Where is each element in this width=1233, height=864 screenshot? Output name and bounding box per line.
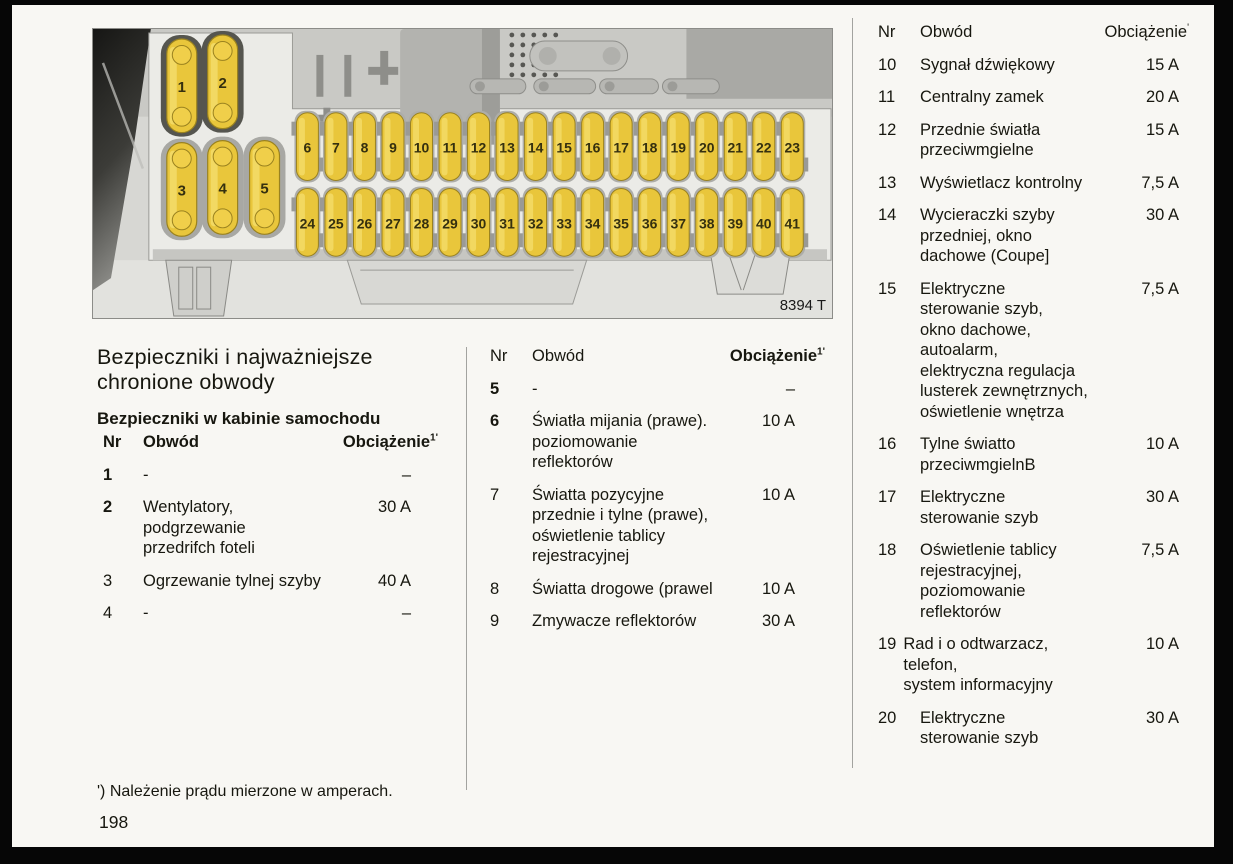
fuse-number: 2: [97, 497, 143, 518]
svg-text:19: 19: [670, 140, 686, 156]
fuse-number: 1: [97, 465, 143, 486]
svg-text:35: 35: [613, 215, 629, 231]
fuse-row-8: 8Światta drogowe (prawel10 A: [490, 579, 825, 600]
table-header: Nr Obwód Obciążenie1': [490, 346, 825, 367]
fuse-load: –: [338, 465, 438, 486]
svg-text:6: 6: [304, 140, 312, 156]
fuse-number: 15: [878, 279, 920, 300]
fuse-number: 19: [878, 634, 896, 655]
fuse-number: 18: [878, 540, 920, 561]
svg-text:4: 4: [218, 180, 227, 197]
fuse-number: 5: [490, 379, 532, 400]
fuse-load: 10 A: [725, 411, 825, 432]
svg-text:28: 28: [414, 215, 430, 231]
fuse-25: 25: [320, 186, 352, 258]
svg-text:7: 7: [332, 140, 340, 156]
fuse-load: 15 A: [1089, 55, 1189, 76]
fuse-23: 23: [776, 111, 808, 183]
scan-border-right: [1214, 0, 1233, 864]
svg-text:15: 15: [556, 140, 572, 156]
fuse-15: 15: [548, 111, 580, 183]
column-divider: [466, 347, 467, 790]
fuse-18: 18: [634, 111, 666, 183]
fuse-row-9: 9Zmywacze reflektorów30 A: [490, 611, 825, 632]
circuit-name: -: [143, 603, 338, 624]
svg-text:12: 12: [471, 140, 487, 156]
fuse-row-7: 7Światta pozycyjneprzednie i tylne (praw…: [490, 485, 825, 567]
fuse-load: 15 A: [1089, 120, 1189, 141]
fuse-number: 11: [878, 87, 920, 108]
fuse-21: 21: [719, 111, 751, 183]
fuse-row-18: 18Oświetlenie tablicyrejestracyjnej,pozi…: [878, 540, 1189, 622]
fuse-number: 12: [878, 120, 920, 141]
fuse-30: 30: [463, 186, 495, 258]
circuit-name: Centralny zamek: [920, 87, 1089, 108]
fuse-7: 7: [320, 111, 352, 183]
fuse-10: 10: [406, 111, 438, 183]
circuit-name: -: [532, 379, 725, 400]
fuse-load: 20 A: [1089, 87, 1189, 108]
figure-caption: 8394 T: [780, 297, 826, 314]
fuse-35: 35: [605, 186, 637, 258]
circuit-name: Światła mijania (prawe).poziomowanierefl…: [532, 411, 725, 473]
header-load: Obciążenie1': [730, 346, 825, 367]
svg-text:5: 5: [260, 180, 268, 197]
circuit-name: Zmywacze reflektorów: [532, 611, 725, 632]
fuse-13: 13: [491, 111, 523, 183]
table-header: Nr Obwód Obciążenie1': [97, 432, 438, 453]
circuit-name: -: [143, 465, 338, 486]
svg-text:39: 39: [728, 215, 744, 231]
fuse-table-left: 1-–2Wentylatory,podgrzewanieprzedrifch f…: [97, 465, 438, 624]
footnote: ') Należenie prądu mierzone w amperach.: [97, 783, 393, 801]
fuse-load: 10 A: [1089, 434, 1189, 455]
fuse-number: 13: [878, 173, 920, 194]
page-number: 198: [99, 812, 128, 833]
circuit-name: Sygnał dźwiękowy: [920, 55, 1089, 76]
svg-text:2: 2: [218, 75, 226, 92]
svg-text:36: 36: [642, 215, 658, 231]
fuse-28: 28: [406, 186, 438, 258]
svg-text:17: 17: [613, 140, 629, 156]
column-divider: [852, 18, 853, 768]
fuse-row-1: 1-–: [97, 465, 438, 486]
fuse-37: 37: [662, 186, 694, 258]
fuse-load: 7,5 A: [1089, 173, 1189, 194]
page-title-line2: chronione obwody: [97, 370, 438, 395]
svg-text:38: 38: [699, 215, 715, 231]
fuse-row-5: 5-–: [490, 379, 825, 400]
svg-text:21: 21: [728, 140, 744, 156]
fuse-19: 19: [662, 111, 694, 183]
svg-text:8: 8: [361, 140, 369, 156]
page-title-line1: Bezpieczniki i najważniejsze: [97, 345, 438, 370]
fuse-load: –: [725, 379, 825, 400]
fuse-3: 3: [161, 139, 203, 241]
header-nr: Nr: [97, 432, 143, 453]
fuse-row-3: 3Ogrzewanie tylnej szyby40 A: [97, 571, 438, 592]
fuse-number: 17: [878, 487, 920, 508]
fuse-load: 10 A: [725, 485, 825, 506]
fuse-33: 33: [548, 186, 580, 258]
fuse-41: 41: [776, 186, 808, 258]
fusebox-svg: 1234567891011121314151617181920212223242…: [93, 29, 832, 318]
fuse-row-2: 2Wentylatory,podgrzewanieprzedrifch fote…: [97, 497, 438, 559]
svg-text:14: 14: [528, 140, 544, 156]
svg-text:20: 20: [699, 140, 715, 156]
scanned-manual-page: 1234567891011121314151617181920212223242…: [0, 0, 1233, 864]
fuse-number: 14: [878, 205, 920, 226]
fuse-11: 11: [434, 111, 466, 183]
fuse-12: 12: [463, 111, 495, 183]
fusebox-illustration: 1234567891011121314151617181920212223242…: [92, 28, 833, 319]
header-nr: Nr: [878, 22, 920, 43]
svg-text:25: 25: [328, 215, 344, 231]
column-right: Nr Obwód Obciążenie' 10Sygnał dźwiękowy1…: [878, 22, 1189, 761]
svg-text:9: 9: [389, 140, 397, 156]
fuse-row-11: 11Centralny zamek20 A: [878, 87, 1189, 108]
fuse-22: 22: [748, 111, 780, 183]
fuse-5: 5: [244, 137, 286, 239]
svg-text:10: 10: [414, 140, 430, 156]
fuse-load: 40 A: [338, 571, 438, 592]
fuse-36: 36: [634, 186, 666, 258]
svg-text:1: 1: [178, 79, 186, 96]
fuse-number: 8: [490, 579, 532, 600]
fuse-29: 29: [434, 186, 466, 258]
circuit-name: Przednie światłaprzeciwmgielne: [920, 120, 1089, 161]
fuse-38: 38: [691, 186, 723, 258]
fuse-8: 8: [349, 111, 381, 183]
header-circuit: Obwód: [920, 22, 972, 43]
fuse-39: 39: [719, 186, 751, 258]
fuse-row-20: 20Elektrycznesterowanie szyb30 A: [878, 708, 1189, 749]
circuit-name: Światta pozycyjneprzednie i tylne (prawe…: [532, 485, 725, 567]
fuse-table-middle: 5-–6Światła mijania (prawe).poziomowanie…: [490, 379, 825, 632]
fuse-number: 10: [878, 55, 920, 76]
fuse-load: –: [338, 603, 438, 624]
svg-text:26: 26: [357, 215, 373, 231]
fuse-17: 17: [605, 111, 637, 183]
fuse-24: 24: [291, 186, 323, 258]
circuit-name: Wycieraczki szybyprzedniej, oknodachowe …: [920, 205, 1089, 267]
header-load: Obciążenie': [1105, 22, 1189, 43]
page-title: Bezpieczniki i najważniejsze chronione o…: [97, 345, 438, 395]
fuse-2: 2: [202, 31, 244, 133]
svg-text:40: 40: [756, 215, 772, 231]
svg-text:18: 18: [642, 140, 658, 156]
circuit-name: Światta drogowe (prawel: [532, 579, 725, 600]
header-circuit: Obwód: [532, 346, 584, 367]
table-header: Nr Obwód Obciążenie': [878, 22, 1189, 43]
fuse-number: 9: [490, 611, 532, 632]
header-nr: Nr: [490, 346, 532, 367]
fuse-9: 9: [377, 111, 409, 183]
fuse-load: 7,5 A: [1089, 279, 1189, 300]
fuse-row-6: 6Światła mijania (prawe).poziomowanieref…: [490, 411, 825, 473]
fuse-20: 20: [691, 111, 723, 183]
fuse-number: 4: [97, 603, 143, 624]
circuit-name: Wentylatory,podgrzewanieprzedrifch fotel…: [143, 497, 338, 559]
fuse-34: 34: [577, 186, 609, 258]
fuse-load: 10 A: [1089, 634, 1189, 655]
svg-text:23: 23: [785, 140, 801, 156]
column-middle: Nr Obwód Obciążenie1' 5-–6Światła mijani…: [490, 346, 825, 644]
fuse-load: 30 A: [1089, 205, 1189, 226]
fuse-load: 10 A: [725, 579, 825, 600]
fuse-4: 4: [202, 137, 244, 239]
svg-text:22: 22: [756, 140, 772, 156]
circuit-name: Elektrycznesterowanie szyb: [920, 487, 1089, 528]
svg-text:37: 37: [670, 215, 686, 231]
svg-text:30: 30: [471, 215, 487, 231]
header-load: Obciążenie1': [343, 432, 438, 453]
svg-text:33: 33: [556, 215, 572, 231]
fuse-number: 6: [490, 411, 532, 432]
svg-text:16: 16: [585, 140, 601, 156]
fuse-row-14: 14Wycieraczki szybyprzedniej, oknodachow…: [878, 205, 1189, 267]
svg-text:34: 34: [585, 215, 601, 231]
circuit-name: Oświetlenie tablicyrejestracyjnej,poziom…: [920, 540, 1089, 622]
svg-text:13: 13: [499, 140, 515, 156]
fuse-14: 14: [520, 111, 552, 183]
fuse-load: 30 A: [1089, 487, 1189, 508]
svg-text:3: 3: [178, 182, 186, 199]
column-left: Bezpieczniki i najważniejsze chronione o…: [97, 345, 438, 636]
circuit-name: Rad i o odtwarzacz,telefon,system inform…: [903, 634, 1089, 696]
fuse-26: 26: [349, 186, 381, 258]
fuse-load: 30 A: [338, 497, 438, 518]
svg-text:31: 31: [499, 215, 515, 231]
svg-text:41: 41: [785, 215, 801, 231]
fuse-load: 30 A: [725, 611, 825, 632]
fuse-40: 40: [748, 186, 780, 258]
scan-border-top: [0, 0, 1233, 5]
svg-text:32: 32: [528, 215, 544, 231]
svg-text:24: 24: [300, 215, 316, 231]
fuse-number: 3: [97, 571, 143, 592]
scan-border-bottom: [0, 847, 1233, 864]
fuse-row-15: 15Elektrycznesterowanie szyb,okno dachow…: [878, 279, 1189, 423]
fuse-row-12: 12Przednie światłaprzeciwmgielne15 A: [878, 120, 1189, 161]
circuit-name: Tylne świattoprzeciwmgielnB: [920, 434, 1089, 475]
fuse-32: 32: [520, 186, 552, 258]
fuse-number: 7: [490, 485, 532, 506]
svg-text:29: 29: [442, 215, 458, 231]
circuit-name: Elektrycznesterowanie szyb: [920, 708, 1089, 749]
circuit-name: Elektrycznesterowanie szyb,okno dachowe,…: [920, 279, 1089, 423]
scan-border-left: [0, 0, 12, 864]
fuse-row-16: 16Tylne świattoprzeciwmgielnB10 A: [878, 434, 1189, 475]
svg-text:27: 27: [385, 215, 401, 231]
fuse-1: 1: [161, 35, 203, 137]
fuse-6: 6: [291, 111, 323, 183]
svg-text:11: 11: [443, 140, 458, 156]
fuse-load: 30 A: [1089, 708, 1189, 729]
section-subtitle: Bezpieczniki w kabinie samochodu: [97, 409, 438, 429]
fuse-row-4: 4-–: [97, 603, 438, 624]
fuse-number: 20: [878, 708, 920, 729]
circuit-name: Ogrzewanie tylnej szyby: [143, 571, 338, 592]
fuse-31: 31: [491, 186, 523, 258]
fuse-row-10: 10Sygnał dźwiękowy15 A: [878, 55, 1189, 76]
header-circuit: Obwód: [143, 432, 199, 453]
fuse-16: 16: [577, 111, 609, 183]
fuse-row-13: 13Wyświetlacz kontrolny7,5 A: [878, 173, 1189, 194]
fuse-row-17: 17Elektrycznesterowanie szyb30 A: [878, 487, 1189, 528]
fuse-number: 16: [878, 434, 920, 455]
fuse-load: 7,5 A: [1089, 540, 1189, 561]
fuse-row-19: 19Rad i o odtwarzacz,telefon,system info…: [878, 634, 1189, 696]
fuse-27: 27: [377, 186, 409, 258]
circuit-name: Wyświetlacz kontrolny: [920, 173, 1089, 194]
fuse-table-right: 10Sygnał dźwiękowy15 A11Centralny zamek2…: [878, 55, 1189, 749]
